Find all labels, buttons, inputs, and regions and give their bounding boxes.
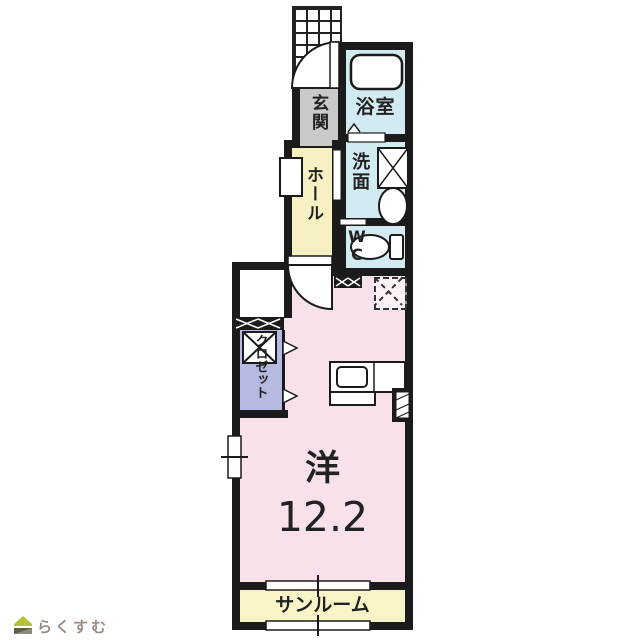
wc-label: WC (347, 228, 367, 264)
kitchen-counter-edge (330, 392, 375, 405)
folding-door-mark (283, 389, 297, 403)
bath-label: 浴室 (346, 96, 405, 120)
washbasin-icon (379, 188, 407, 224)
bathtub-icon (351, 55, 402, 89)
main-room-size: 12.2 (240, 494, 405, 542)
house-logo-icon (14, 616, 32, 634)
folding-door-mark (283, 341, 297, 355)
bath-door (348, 133, 385, 142)
bath-door-mark (348, 124, 360, 132)
wc-door (340, 219, 366, 225)
washroom-label: 洗面 (349, 152, 369, 192)
refrigerator-x (375, 278, 402, 305)
genkan-label: 玄関 (308, 94, 327, 132)
hall-door-leaf (288, 256, 332, 265)
hatch-bar (334, 276, 362, 288)
floor-plan: 玄関 浴室 ホール 洗面 WC クロゼット 洋 12.2 サンルーム らくすむ (0, 0, 640, 640)
washroom-door (333, 150, 341, 200)
entrance-door-leaf (330, 42, 339, 88)
closet-upper-bar (232, 317, 284, 330)
main-room-label: 洋 (240, 450, 405, 490)
hall-label: ホール (303, 166, 322, 223)
logo-text: らくすむ (37, 616, 109, 637)
closet-label: クロゼット (252, 334, 267, 399)
kitchen-sink-icon (337, 367, 367, 387)
hall-door-arc (288, 265, 332, 309)
toilet-tank (390, 235, 403, 259)
sunroom-label: サンルーム (240, 594, 405, 618)
